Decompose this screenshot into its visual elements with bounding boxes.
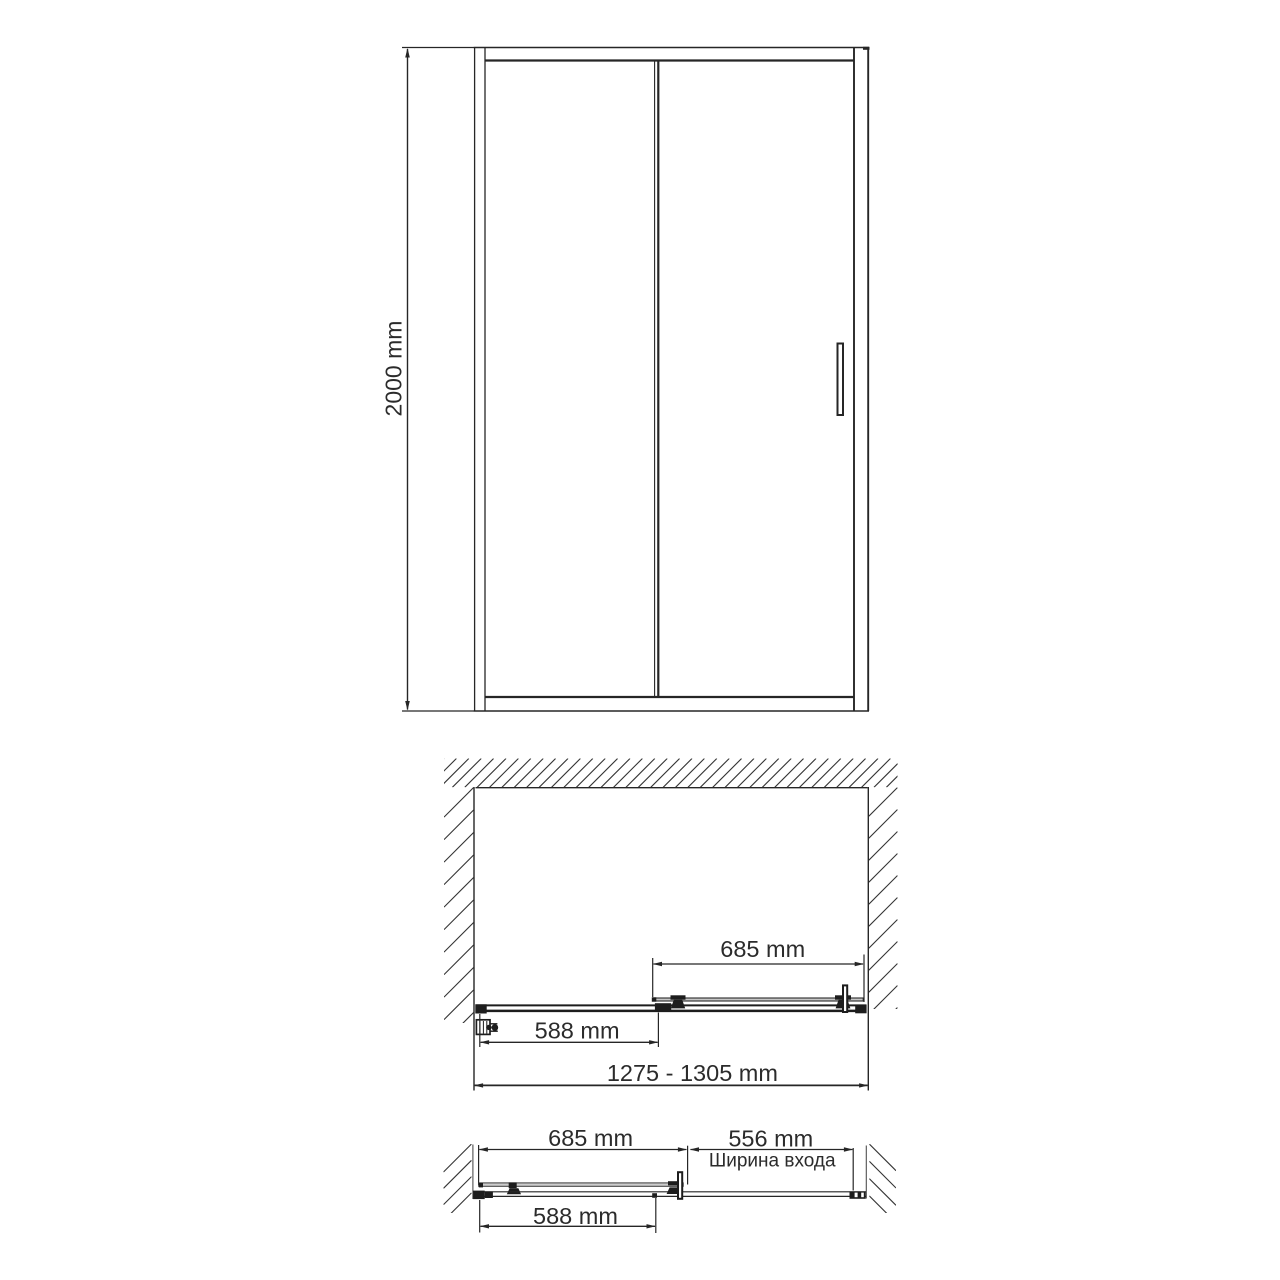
svg-text:556 mm: 556 mm <box>728 1125 813 1151</box>
svg-text:588 mm: 588 mm <box>535 1017 620 1043</box>
svg-text:588 mm: 588 mm <box>533 1203 618 1229</box>
svg-text:2000 mm: 2000 mm <box>381 321 407 417</box>
svg-text:1275 - 1305 mm: 1275 - 1305 mm <box>607 1060 778 1086</box>
svg-text:685 mm: 685 mm <box>548 1125 633 1151</box>
svg-text:685 mm: 685 mm <box>720 936 805 962</box>
svg-text:Ширина входа: Ширина входа <box>709 1151 836 1172</box>
